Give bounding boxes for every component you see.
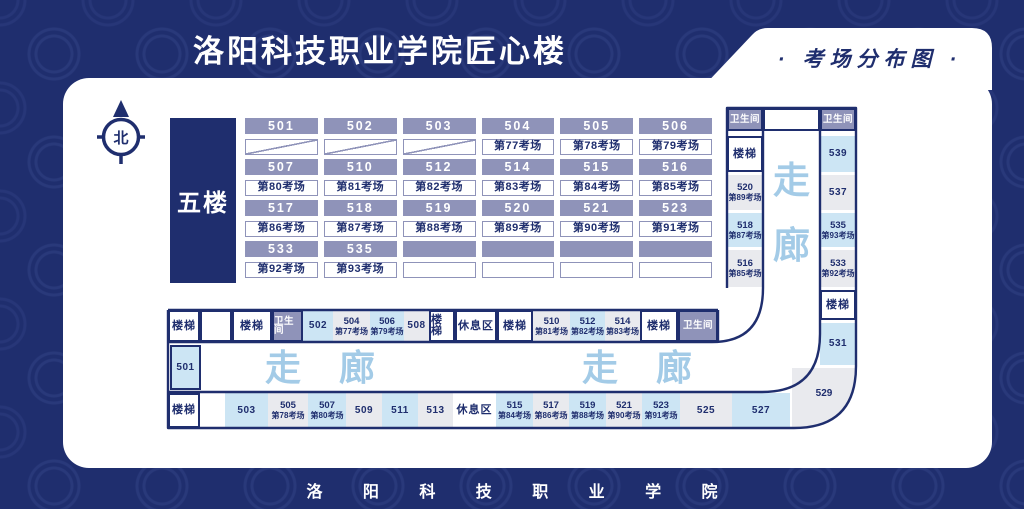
grid-room-header: 517 — [245, 200, 318, 216]
room-cell: 512第82考场 — [570, 310, 605, 342]
stair-cell: 楼梯 — [727, 136, 763, 172]
room-cell: 517第86考场 — [533, 393, 569, 428]
footer-school-name: 洛 阳 科 技 职 业 学 院 — [0, 478, 1024, 502]
exam-room-number: 第78考场 — [272, 411, 305, 421]
room-number: 510 — [544, 316, 560, 327]
corridor-label-char: 走 — [773, 162, 810, 199]
grid-exam-cell: 第82考场 — [403, 180, 476, 196]
grid-room-header: 514 — [482, 159, 555, 175]
corridor-label-right: 走 廊 — [582, 350, 706, 386]
grid-room-header: 502 — [324, 118, 397, 134]
grid-exam-cell: 第81考场 — [324, 180, 397, 196]
room-cell: 525 — [680, 393, 732, 428]
exam-room-number: 第90考场 — [608, 411, 641, 421]
room-cell: 501 — [170, 345, 201, 390]
grid-exam-cell: 第83考场 — [482, 180, 555, 196]
room-cell: 503 — [225, 393, 268, 428]
grid-room-header: 505 — [560, 118, 633, 134]
grid-room-header: 501 — [245, 118, 318, 134]
empty-exam-cell — [639, 262, 712, 278]
stair-cell: 楼梯 — [232, 310, 272, 342]
exam-room-number: 第85考场 — [729, 269, 762, 279]
stair-cell: 楼梯 — [168, 310, 200, 342]
grid-room-header: 518 — [324, 200, 397, 216]
grid-exam-cell: 第85考场 — [639, 180, 712, 196]
stair-cell: 楼梯 — [429, 310, 455, 342]
stair-cell: 楼梯 — [168, 393, 200, 428]
exam-room-number: 第92考场 — [822, 269, 855, 279]
room-number: 529 — [816, 388, 833, 399]
room-number: 514 — [615, 316, 631, 327]
empty-exam-cell — [403, 262, 476, 278]
room-cell: 523第91考场 — [642, 393, 680, 428]
room-number: 535 — [830, 220, 846, 231]
grid-room-header — [482, 241, 555, 257]
room-number: 520 — [737, 182, 753, 193]
exam-room-number: 第79考场 — [371, 327, 404, 337]
grid-room-header: 519 — [403, 200, 476, 216]
grid-exam-cell: 第87考场 — [324, 221, 397, 237]
grid-exam-cell: 第77考场 — [482, 139, 555, 155]
grid-exam-cell: 第79考场 — [639, 139, 712, 155]
exam-room-number: 第82考场 — [571, 327, 604, 337]
grid-room-header: 520 — [482, 200, 555, 216]
exam-room-number: 第80考场 — [311, 411, 344, 421]
grid-room-header: 523 — [639, 200, 712, 216]
grid-exam-cell: 第80考场 — [245, 180, 318, 196]
grid-room-header — [560, 241, 633, 257]
rest-area-cell: 休息区 — [453, 393, 496, 428]
grid-room-header: 504 — [482, 118, 555, 134]
exam-room-number: 第84考场 — [498, 411, 531, 421]
room-cell: 521第90考场 — [606, 393, 642, 428]
grid-room-header — [639, 241, 712, 257]
room-number: 515 — [507, 400, 523, 411]
room-cell: 516第85考场 — [727, 250, 763, 287]
toilet-cell: 卫生间 — [272, 310, 303, 342]
grid-exam-cell: 第86考场 — [245, 221, 318, 237]
room-number: 505 — [280, 400, 296, 411]
room-cell: 535第93考场 — [820, 213, 856, 247]
exam-map-poster: 洛阳科技职业学院匠心楼 · 考场分布图 · 北 五楼 5015025035045… — [0, 0, 1024, 509]
unused-room-slash-cell — [324, 139, 397, 155]
exam-room-number: 第83考场 — [606, 327, 639, 337]
grid-exam-cell: 第92考场 — [245, 262, 318, 278]
room-cell: 519第88考场 — [569, 393, 606, 428]
room-number: 533 — [830, 258, 846, 269]
room-number: 523 — [653, 400, 669, 411]
empty-exam-cell — [482, 262, 555, 278]
grid-room-header: 512 — [403, 159, 476, 175]
room-cell: 513 — [418, 393, 453, 428]
room-number: 504 — [344, 316, 360, 327]
exam-room-number: 第91考场 — [645, 411, 678, 421]
room-cell: 514第83考场 — [605, 310, 640, 342]
corridor-label-left: 走 廊 — [265, 350, 389, 386]
exam-room-number: 第89考场 — [729, 193, 762, 203]
grid-room-header: 510 — [324, 159, 397, 175]
compass-north-label: 北 — [113, 130, 128, 147]
room-cell: 520第89考场 — [727, 175, 763, 210]
room-cell: 527 — [732, 393, 790, 428]
unused-room-slash-cell — [403, 139, 476, 155]
room-cell: 509 — [346, 393, 382, 428]
blank-cell — [200, 310, 232, 342]
room-number: 517 — [543, 400, 559, 411]
toilet-cell: 卫生间 — [678, 310, 718, 342]
grid-exam-cell: 第78考场 — [560, 139, 633, 155]
room-cell: 533第92考场 — [820, 250, 856, 287]
stair-cell: 楼梯 — [497, 310, 533, 342]
room-cell: 531 — [820, 323, 856, 365]
grid-room-header: 506 — [639, 118, 712, 134]
room-number: 507 — [319, 400, 335, 411]
room-cell: 510第81考场 — [533, 310, 570, 342]
grid-exam-cell: 第84考场 — [560, 180, 633, 196]
room-number: 519 — [580, 400, 596, 411]
north-compass-icon: 北 — [92, 99, 150, 169]
room-number: 518 — [737, 220, 753, 231]
room-cell: 506第79考场 — [370, 310, 404, 342]
stair-cell: 楼梯 — [820, 290, 856, 320]
room-number: 521 — [616, 400, 632, 411]
room-cell: 515第84考场 — [496, 393, 533, 428]
toilet-cell: 卫生间 — [727, 108, 763, 131]
grid-exam-cell: 第90考场 — [560, 221, 633, 237]
room-cell: 539 — [820, 136, 856, 172]
grid-room-header: 535 — [324, 241, 397, 257]
grid-room-header: 515 — [560, 159, 633, 175]
floor-label: 五楼 — [170, 118, 236, 283]
grid-exam-cell: 第89考场 — [482, 221, 555, 237]
blank-cell — [763, 108, 820, 131]
room-cell: 505第78考场 — [268, 393, 308, 428]
grid-room-header: 533 — [245, 241, 318, 257]
page-title: 洛阳科技职业学院匠心楼 — [100, 26, 660, 71]
corridor-label-char: 廊 — [773, 227, 810, 264]
grid-exam-cell: 第91考场 — [639, 221, 712, 237]
stair-cell: 楼梯 — [640, 310, 678, 342]
room-number: 506 — [379, 316, 395, 327]
grid-exam-cell: 第88考场 — [403, 221, 476, 237]
room-cell: 537 — [820, 175, 856, 210]
empty-exam-cell — [560, 262, 633, 278]
exam-room-number: 第77考场 — [335, 327, 368, 337]
grid-room-header: 516 — [639, 159, 712, 175]
room-cell: 507第80考场 — [308, 393, 346, 428]
grid-exam-cell: 第93考场 — [324, 262, 397, 278]
grid-room-header: 507 — [245, 159, 318, 175]
exam-room-number: 第93考场 — [822, 231, 855, 241]
room-cell: 518第87考场 — [727, 213, 763, 247]
exam-room-number: 第88考场 — [571, 411, 604, 421]
room-grid: 501502503504505506第77考场第78考场第79考场5075105… — [245, 118, 712, 278]
room-number: 516 — [737, 258, 753, 269]
room-cell: 504第77考场 — [333, 310, 370, 342]
room-cell: 511 — [382, 393, 418, 428]
rest-area-cell: 休息区 — [455, 310, 497, 342]
toilet-cell: 卫生间 — [820, 108, 856, 131]
room-number: 512 — [580, 316, 596, 327]
room-cell: 508 — [404, 310, 429, 342]
exam-room-number: 第81考场 — [535, 327, 568, 337]
exam-room-number: 第86考场 — [535, 411, 568, 421]
grid-room-header: 521 — [560, 200, 633, 216]
corridor-label-vertical: 走廊 — [763, 162, 820, 264]
grid-room-header: 503 — [403, 118, 476, 134]
room-cell: 502 — [303, 310, 333, 342]
exam-room-number: 第87考场 — [729, 231, 762, 241]
grid-room-header — [403, 241, 476, 257]
unused-room-slash-cell — [245, 139, 318, 155]
